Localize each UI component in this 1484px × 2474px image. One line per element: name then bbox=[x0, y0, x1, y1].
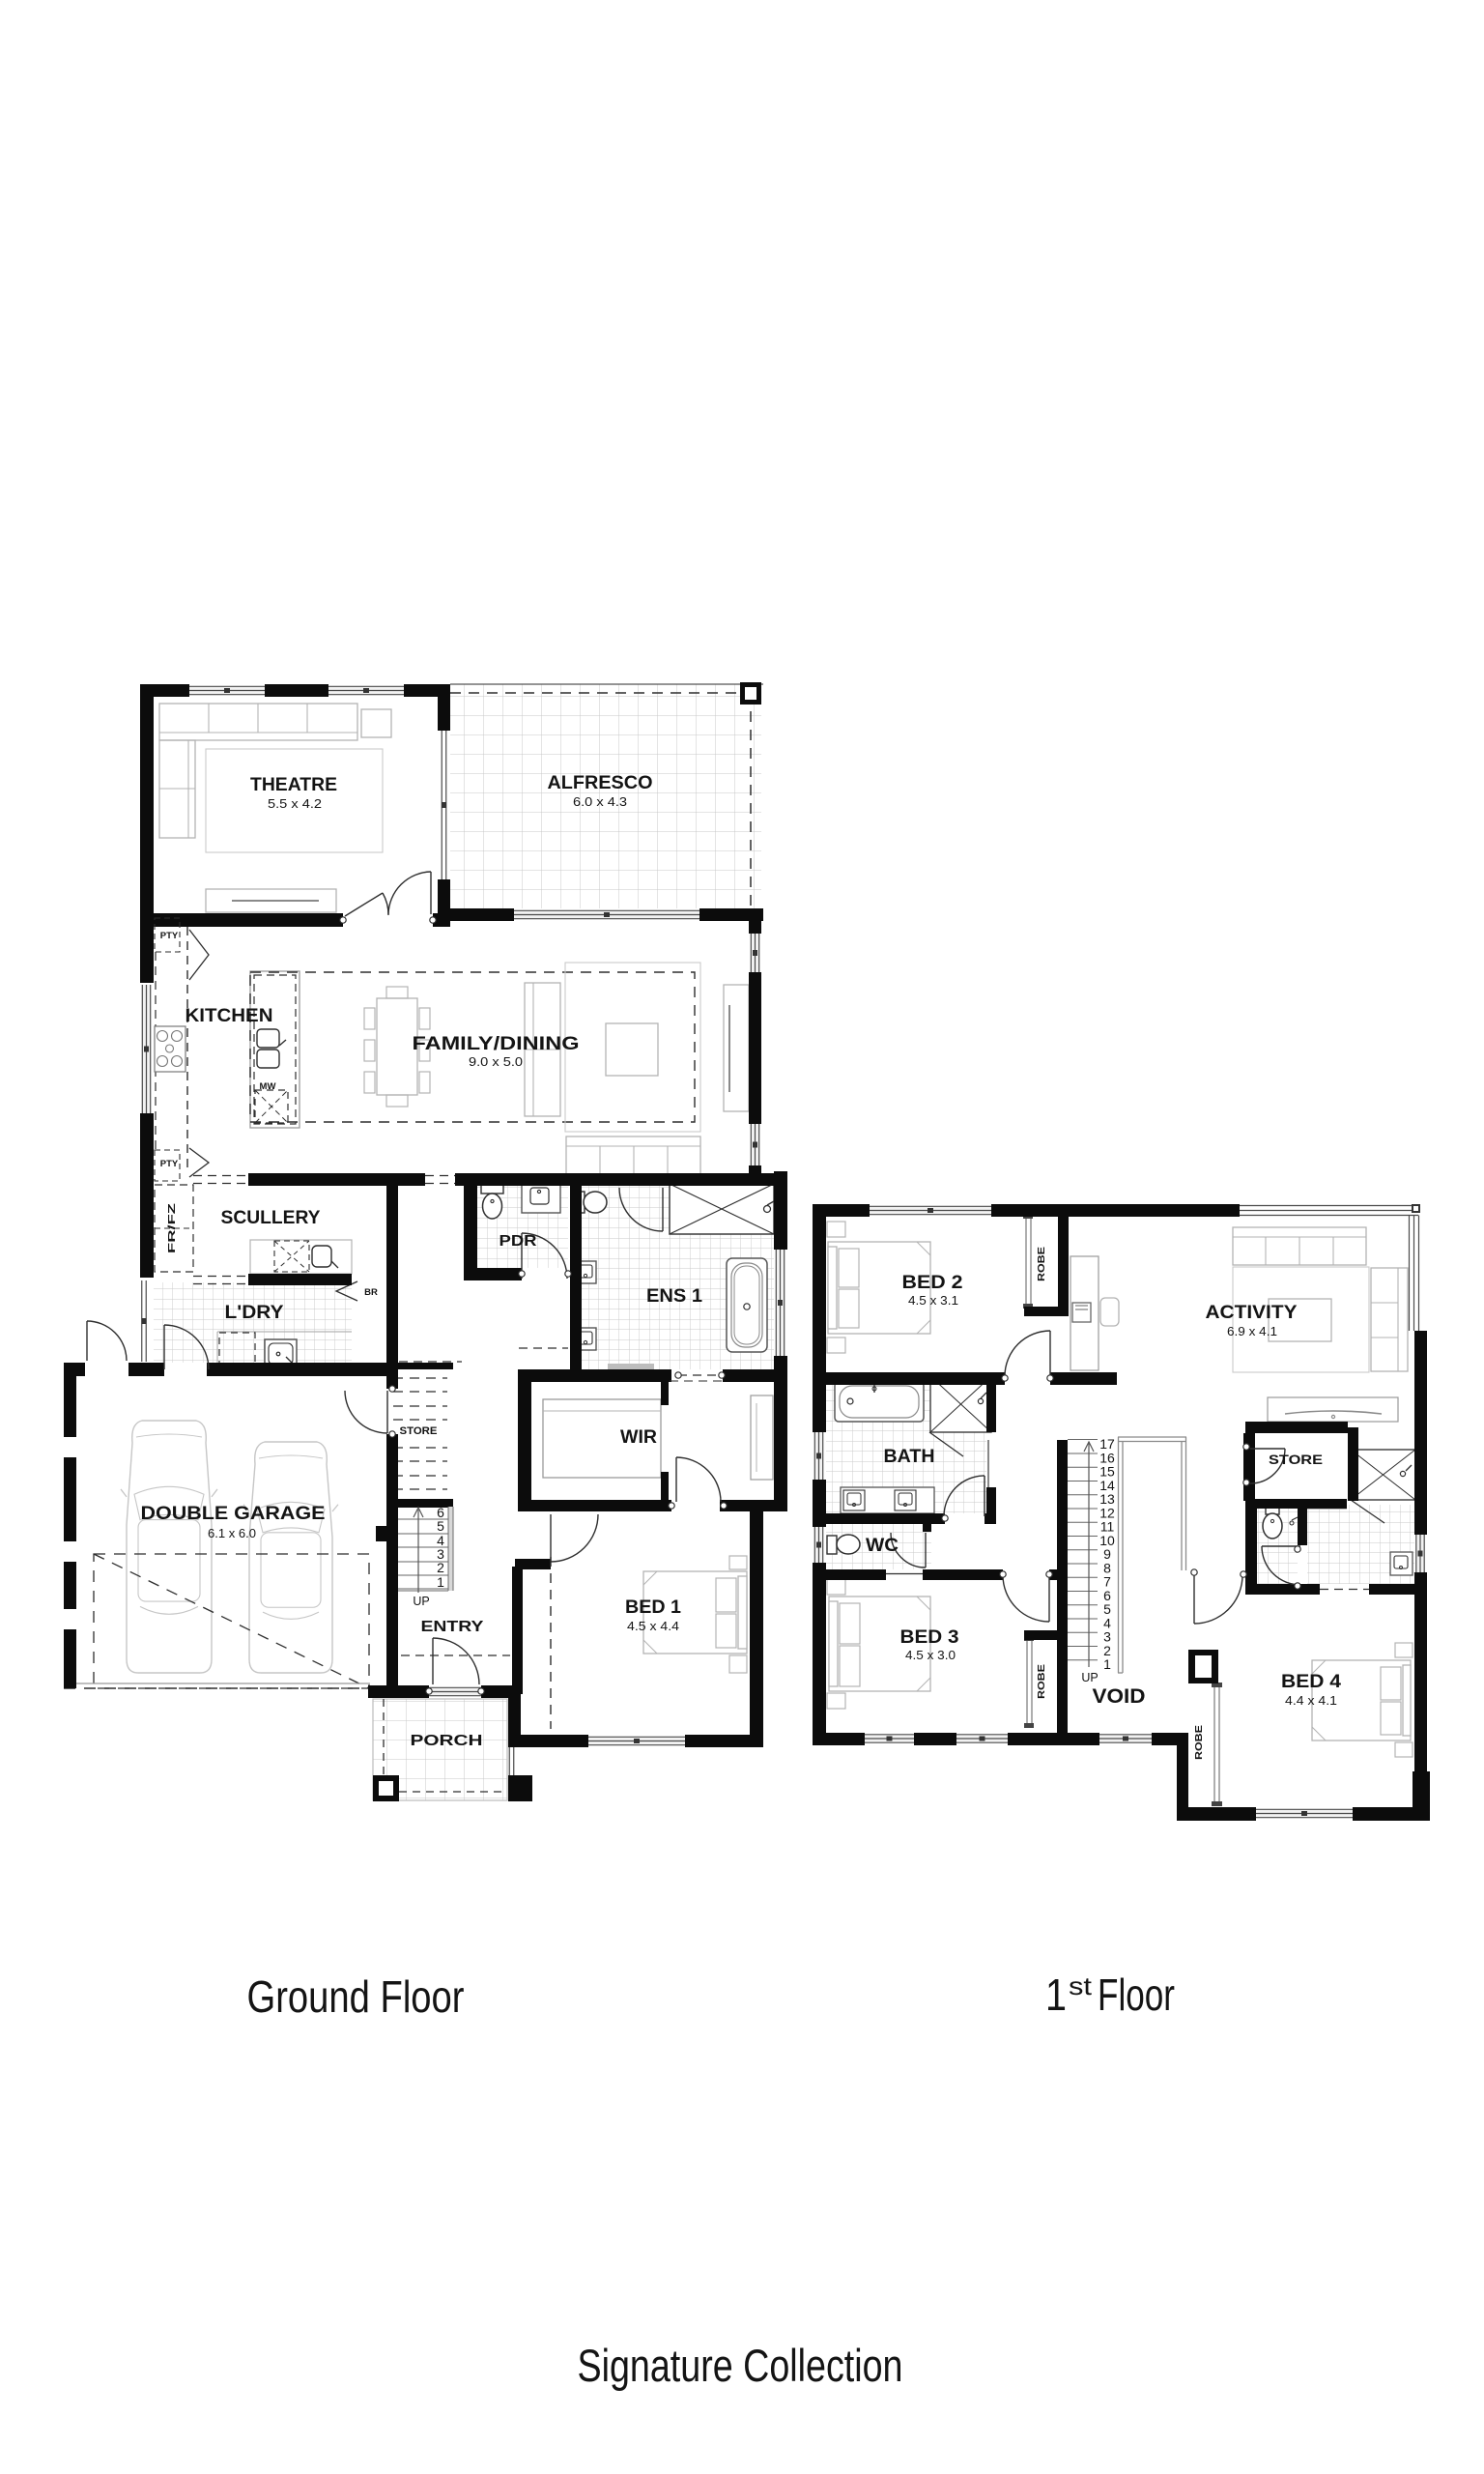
svg-text:ENTRY: ENTRY bbox=[421, 1619, 484, 1635]
svg-text:SCULLERY: SCULLERY bbox=[221, 1208, 321, 1228]
svg-text:4.5 x 3.0: 4.5 x 3.0 bbox=[905, 1648, 956, 1662]
svg-text:ACTIVITY: ACTIVITY bbox=[1206, 1303, 1298, 1323]
svg-text:BED 2: BED 2 bbox=[902, 1273, 963, 1293]
svg-text:5.5 x 4.2: 5.5 x 4.2 bbox=[268, 796, 322, 811]
svg-text:4.5 x 4.4: 4.5 x 4.4 bbox=[627, 1619, 679, 1633]
svg-text:6.0 x 4.3: 6.0 x 4.3 bbox=[573, 794, 627, 809]
svg-text:9.0 x 5.0: 9.0 x 5.0 bbox=[469, 1054, 523, 1069]
svg-text:6.9 x 4.1: 6.9 x 4.1 bbox=[1227, 1324, 1277, 1338]
svg-text:4.5 x 3.1: 4.5 x 3.1 bbox=[908, 1293, 958, 1308]
svg-text:FAMILY/DINING: FAMILY/DINING bbox=[413, 1034, 580, 1054]
svg-text:2: 2 bbox=[437, 1560, 444, 1575]
svg-text:UP: UP bbox=[1081, 1671, 1098, 1684]
svg-text:L'DRY: L'DRY bbox=[225, 1303, 284, 1323]
svg-text:BATH: BATH bbox=[884, 1447, 935, 1467]
svg-text:STORE: STORE bbox=[400, 1425, 438, 1437]
svg-text:ENS 1: ENS 1 bbox=[646, 1286, 702, 1307]
svg-text:BR: BR bbox=[364, 1287, 378, 1298]
svg-text:ROBE: ROBE bbox=[1037, 1247, 1047, 1281]
svg-text:Ground Floor: Ground Floor bbox=[247, 1971, 465, 2022]
svg-text:STORE: STORE bbox=[1269, 1452, 1323, 1467]
svg-text:MW: MW bbox=[260, 1081, 276, 1092]
svg-text:DOUBLE GARAGE: DOUBLE GARAGE bbox=[141, 1504, 326, 1524]
svg-text:1: 1 bbox=[1103, 1656, 1111, 1672]
svg-text:PTY: PTY bbox=[160, 931, 179, 941]
svg-text:ALFRESCO: ALFRESCO bbox=[548, 773, 653, 793]
svg-text:1stFloor: 1stFloor bbox=[1045, 1970, 1175, 2020]
svg-text:FR/FZ: FR/FZ bbox=[167, 1203, 178, 1253]
svg-text:BED 4: BED 4 bbox=[1281, 1672, 1341, 1692]
svg-text:5: 5 bbox=[437, 1518, 444, 1534]
svg-text:BED 3: BED 3 bbox=[900, 1627, 959, 1648]
svg-text:PORCH: PORCH bbox=[411, 1733, 483, 1749]
svg-text:ROBE: ROBE bbox=[1194, 1725, 1205, 1760]
svg-text:UP: UP bbox=[413, 1595, 429, 1608]
svg-text:ROBE: ROBE bbox=[1037, 1664, 1047, 1699]
svg-text:WIR: WIR bbox=[620, 1427, 657, 1448]
svg-text:KITCHEN: KITCHEN bbox=[185, 1006, 273, 1026]
svg-text:1: 1 bbox=[437, 1574, 444, 1590]
svg-text:THEATRE: THEATRE bbox=[250, 775, 337, 795]
svg-text:WC: WC bbox=[866, 1536, 899, 1556]
svg-text:6.1 x 6.0: 6.1 x 6.0 bbox=[208, 1526, 256, 1540]
svg-text:VOID: VOID bbox=[1093, 1685, 1146, 1708]
svg-text:PDR: PDR bbox=[499, 1233, 538, 1250]
svg-text:PTY: PTY bbox=[160, 1159, 179, 1169]
svg-text:BED 1: BED 1 bbox=[625, 1597, 681, 1618]
svg-text:4.4 x 4.1: 4.4 x 4.1 bbox=[1285, 1693, 1337, 1708]
svg-text:Signature Collection: Signature Collection bbox=[578, 2340, 903, 2391]
